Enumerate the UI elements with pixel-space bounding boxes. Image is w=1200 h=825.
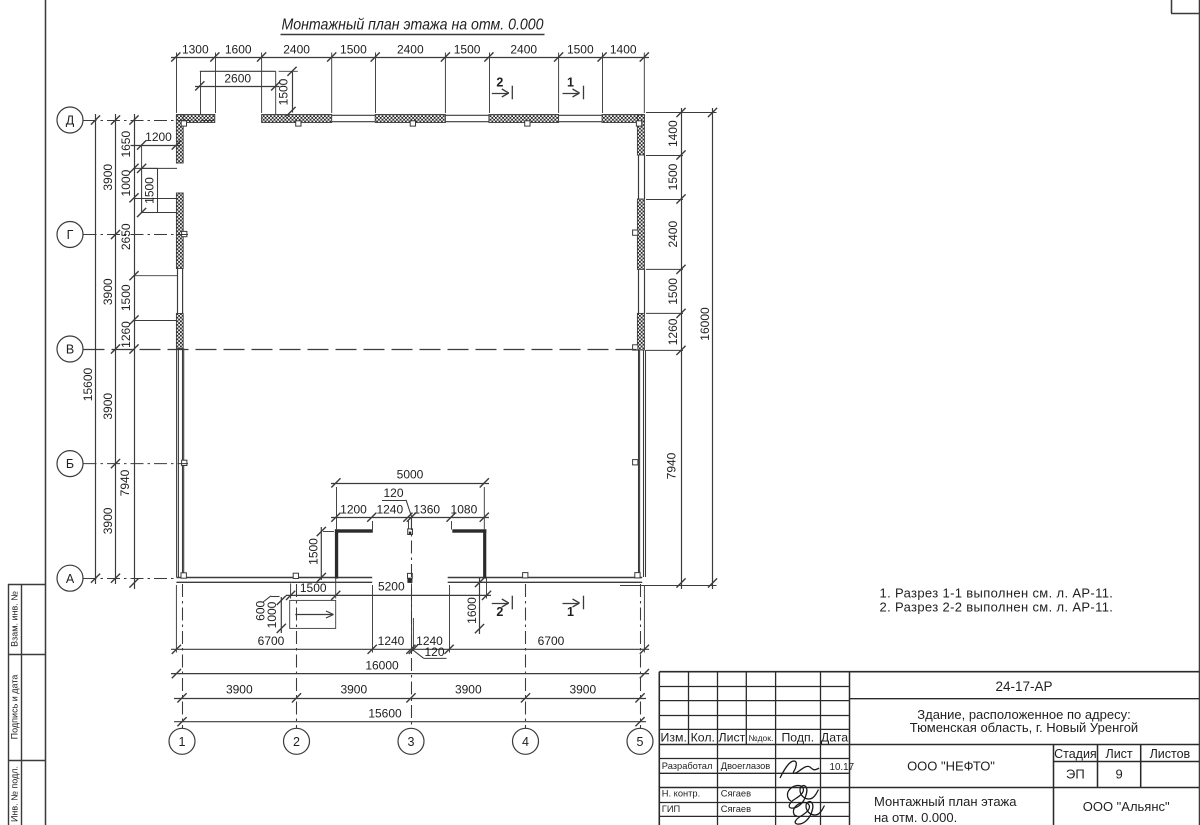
svg-text:120: 120: [424, 645, 444, 659]
svg-text:Б: Б: [66, 457, 74, 471]
svg-text:1500: 1500: [666, 278, 680, 305]
svg-text:120: 120: [383, 486, 403, 500]
svg-text:3900: 3900: [101, 507, 115, 534]
svg-text:Подп.: Подп.: [781, 731, 814, 745]
svg-text:Лист: Лист: [719, 731, 746, 745]
svg-text:1500: 1500: [142, 177, 156, 204]
svg-text:1600: 1600: [225, 43, 252, 57]
svg-text:2400: 2400: [510, 43, 537, 57]
svg-text:ЭП: ЭП: [1066, 766, 1085, 781]
svg-text:1000: 1000: [119, 169, 133, 196]
svg-text:Монтажный план этажа на отм. 0: Монтажный план этажа на отм. 0.000: [282, 17, 544, 34]
svg-text:1600: 1600: [465, 597, 479, 624]
svg-text:1: 1: [567, 605, 574, 619]
svg-text:15600: 15600: [368, 706, 402, 720]
svg-text:Изм.: Изм.: [661, 731, 687, 745]
svg-text:1500: 1500: [567, 43, 594, 57]
svg-text:1: 1: [179, 735, 186, 749]
svg-text:1500: 1500: [454, 43, 481, 57]
svg-text:1400: 1400: [666, 120, 680, 147]
svg-text:1. Разрез 1-1 выполнен см. л.: 1. Разрез 1-1 выполнен см. л. АР-11.: [880, 586, 1114, 601]
svg-text:1240: 1240: [378, 634, 405, 648]
svg-text:1300: 1300: [182, 43, 209, 57]
svg-text:6700: 6700: [538, 634, 565, 648]
svg-text:Листов: Листов: [1150, 747, 1191, 761]
svg-text:Разработал: Разработал: [662, 761, 713, 771]
svg-text:1080: 1080: [451, 502, 478, 516]
svg-text:3900: 3900: [101, 164, 115, 191]
svg-text:1500: 1500: [340, 43, 367, 57]
svg-text:Г: Г: [67, 228, 74, 242]
svg-text:1260: 1260: [119, 321, 133, 348]
svg-text:2650: 2650: [119, 223, 133, 250]
svg-text:1200: 1200: [340, 502, 367, 516]
svg-text:1500: 1500: [300, 581, 327, 595]
svg-text:Дата: Дата: [821, 731, 848, 745]
svg-text:Стадия: Стадия: [1054, 747, 1097, 761]
svg-text:1: 1: [567, 76, 574, 90]
svg-text:Взам. инв. №: Взам. инв. №: [10, 591, 20, 647]
svg-text:5000: 5000: [397, 467, 424, 481]
svg-text:24-17-АР: 24-17-АР: [995, 679, 1052, 694]
svg-text:15600: 15600: [81, 367, 95, 401]
svg-text:1500: 1500: [119, 284, 133, 311]
svg-text:1260: 1260: [666, 318, 680, 345]
svg-text:1360: 1360: [413, 502, 440, 516]
svg-text:3900: 3900: [101, 393, 115, 420]
svg-text:ООО "Альянс": ООО "Альянс": [1083, 799, 1170, 814]
svg-text:2400: 2400: [283, 43, 310, 57]
svg-text:3900: 3900: [340, 683, 367, 697]
svg-text:3900: 3900: [226, 683, 253, 697]
svg-text:1200: 1200: [145, 130, 172, 144]
svg-text:Тюменская область, г. Новый Ур: Тюменская область, г. Новый Уренгой: [910, 720, 1138, 735]
svg-text:5: 5: [637, 735, 644, 749]
svg-text:Двоеглазов: Двоеглазов: [721, 761, 770, 771]
svg-text:ГИП: ГИП: [662, 804, 680, 814]
svg-text:2: 2: [496, 76, 503, 90]
svg-text:1240: 1240: [376, 502, 403, 516]
svg-text:В: В: [66, 343, 74, 357]
svg-text:16000: 16000: [698, 307, 712, 341]
svg-text:7940: 7940: [118, 469, 132, 496]
svg-text:Монтажный план этажа: Монтажный план этажа: [874, 794, 1017, 809]
svg-text:2400: 2400: [397, 43, 424, 57]
svg-text:1000: 1000: [265, 601, 279, 628]
svg-text:3900: 3900: [455, 683, 482, 697]
svg-text:2600: 2600: [224, 72, 251, 86]
svg-text:3: 3: [408, 735, 415, 749]
svg-text:5200: 5200: [378, 580, 405, 594]
svg-text:2400: 2400: [666, 221, 680, 248]
svg-text:16000: 16000: [365, 658, 399, 672]
svg-text:на отм. 0.000.: на отм. 0.000.: [874, 810, 957, 825]
svg-text:Сягаев: Сягаев: [721, 804, 751, 814]
svg-text:3900: 3900: [101, 278, 115, 305]
svg-text:А: А: [66, 572, 75, 586]
svg-text:Сягаев: Сягаев: [721, 789, 751, 799]
svg-text:Инв. № подл.: Инв. № подл.: [10, 766, 20, 822]
svg-text:ООО "НЕФТО": ООО "НЕФТО": [907, 758, 995, 773]
svg-text:2: 2: [293, 735, 300, 749]
svg-text:6700: 6700: [258, 634, 285, 648]
svg-text:7940: 7940: [665, 452, 679, 479]
svg-text:2: 2: [496, 605, 503, 619]
svg-text:Н. контр.: Н. контр.: [662, 789, 700, 799]
svg-text:№док.: №док.: [748, 733, 773, 743]
svg-text:1500: 1500: [307, 538, 321, 565]
svg-text:Лист: Лист: [1106, 747, 1133, 761]
svg-text:Подпись и дата: Подпись и дата: [10, 675, 20, 740]
svg-text:1400: 1400: [610, 43, 637, 57]
svg-text:Д: Д: [66, 114, 75, 128]
svg-text:1500: 1500: [666, 163, 680, 190]
svg-text:3900: 3900: [569, 683, 596, 697]
svg-text:1650: 1650: [119, 131, 133, 158]
svg-text:2. Разрез 2-2 выполнен см. л.: 2. Разрез 2-2 выполнен см. л. АР-11.: [880, 600, 1114, 615]
svg-text:10.17: 10.17: [830, 762, 855, 773]
svg-text:9: 9: [1115, 766, 1122, 781]
svg-text:1500: 1500: [277, 78, 291, 105]
svg-text:Кол.: Кол.: [691, 731, 715, 745]
svg-text:4: 4: [522, 735, 529, 749]
